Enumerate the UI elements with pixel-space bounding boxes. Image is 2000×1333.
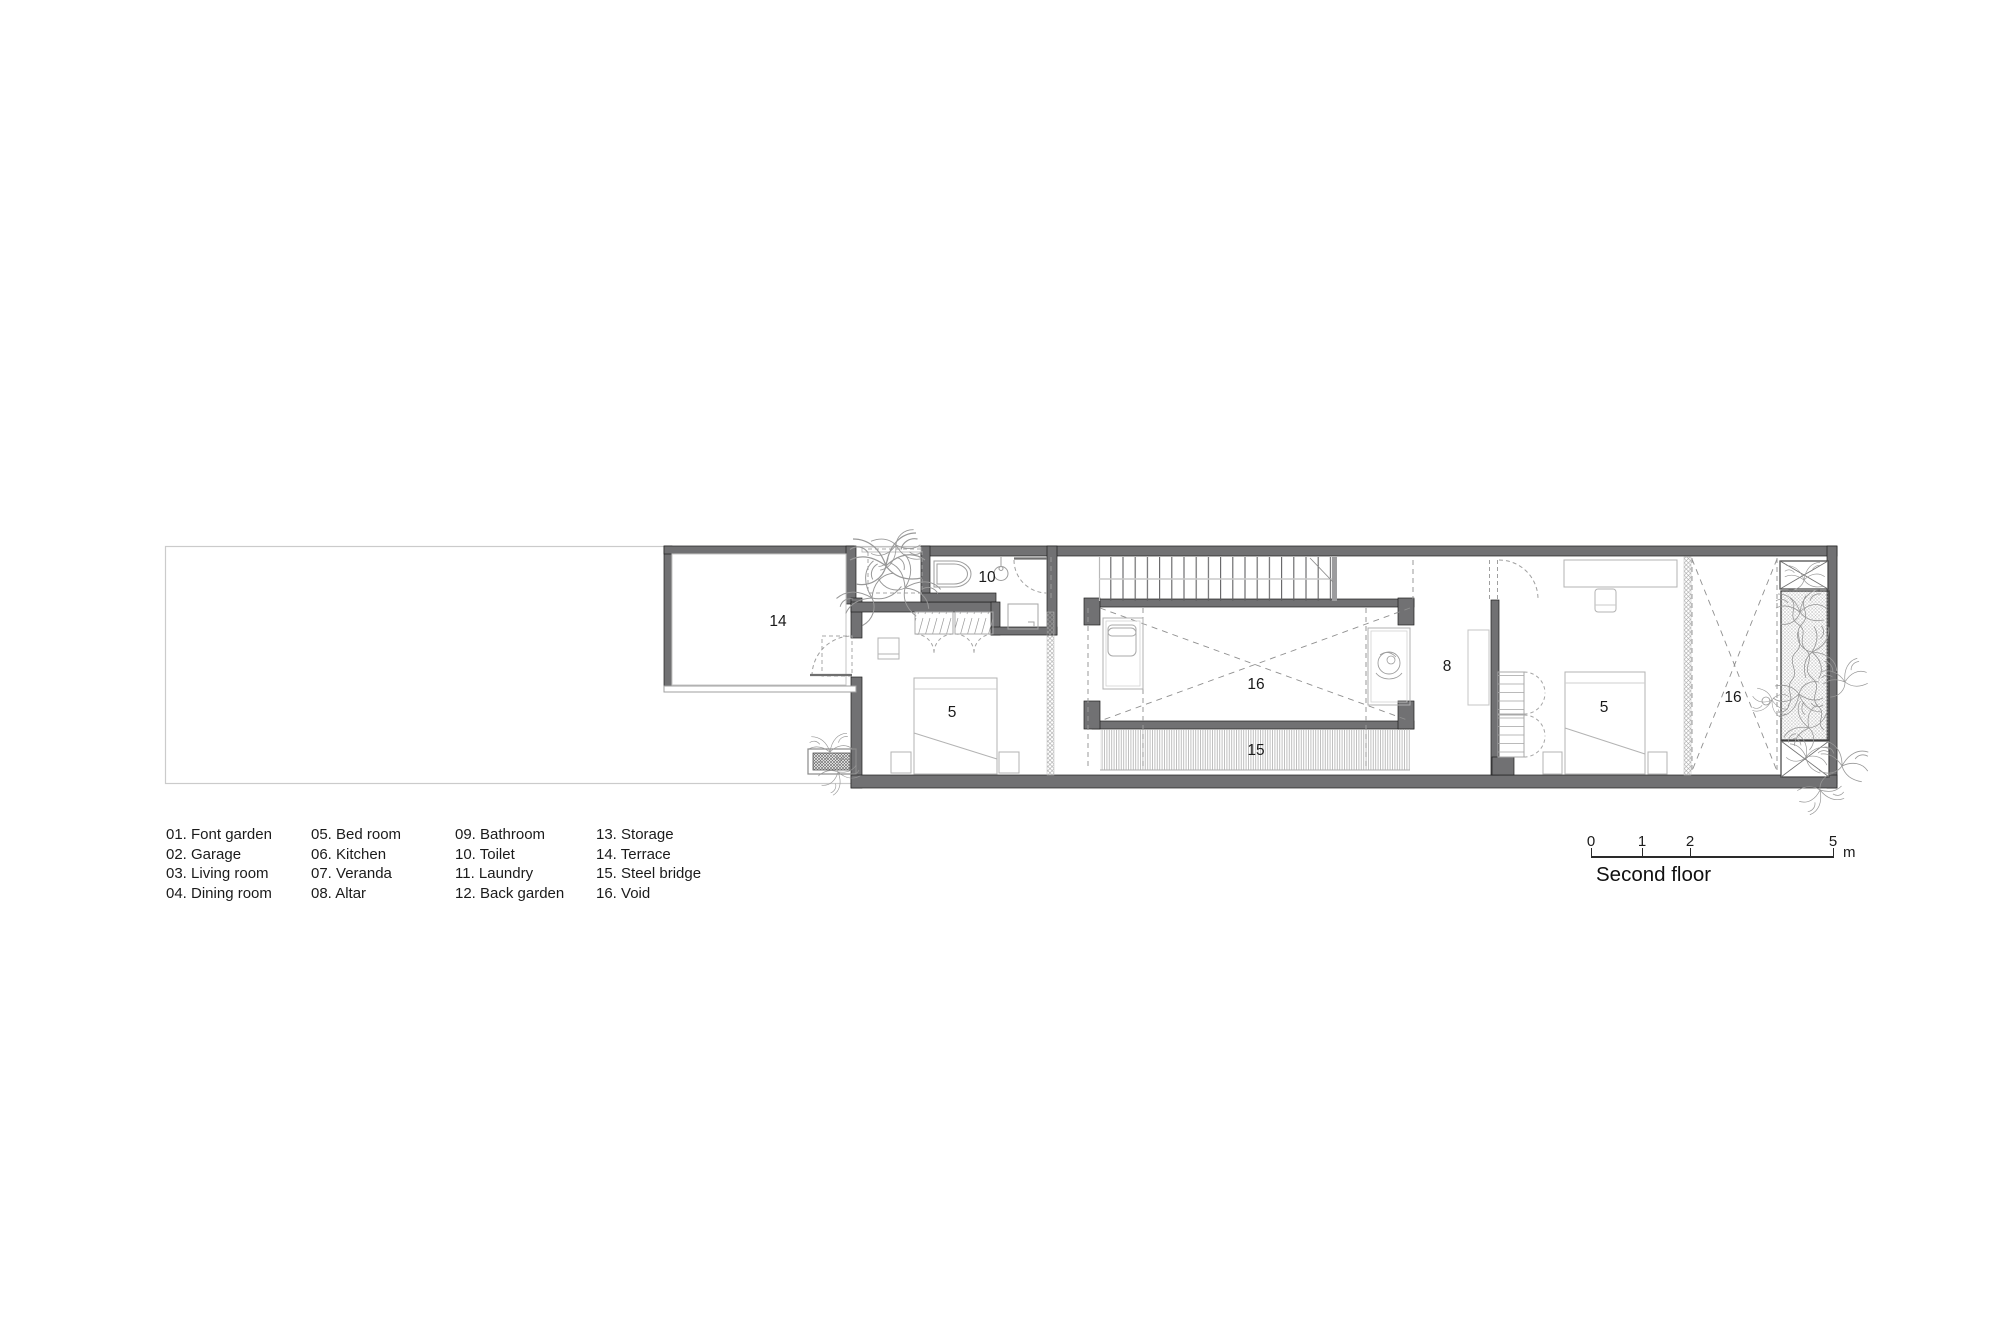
void-pier-tr	[1398, 598, 1414, 625]
toilet-wall-bottom	[921, 593, 996, 602]
room-label-toilet: 10	[978, 569, 996, 586]
plant-sprig-terrace	[831, 556, 907, 629]
altar-console	[1468, 630, 1489, 705]
bathtub-inner	[937, 564, 967, 584]
railing-strip-left	[1047, 612, 1054, 775]
bedroom-left	[878, 612, 1019, 774]
wardrobe-left-panel-2	[955, 612, 993, 634]
sink-tap	[999, 567, 1003, 571]
legend-item: 02. Garage	[166, 845, 311, 865]
nightstand-right-1	[1543, 752, 1562, 774]
legend-item: 16. Void	[596, 884, 756, 904]
side-table	[878, 638, 899, 659]
wardrobe-right-shelf-1	[1498, 672, 1524, 714]
room-label-bedroom-right: 5	[1600, 699, 1609, 716]
bedroom-left-wall-top	[851, 602, 996, 612]
railing-strip-right	[1684, 557, 1691, 775]
scale-bar-line	[1591, 856, 1834, 858]
legend: 01. Font garden 02. Garage 03. Living ro…	[166, 825, 756, 903]
nightstand-left-1	[891, 752, 911, 773]
office-chair-hub	[1387, 656, 1395, 664]
legend-column-2: 05. Bed room 06. Kitchen 07. Veranda 08.…	[311, 825, 455, 903]
void-right-x	[1692, 559, 1777, 771]
legend-column-4: 13. Storage 14. Terrace 15. Steel bridge…	[596, 825, 756, 903]
legend-item: 13. Storage	[596, 825, 756, 845]
floor-plan-page: 14 10 5 16 15 8 5 16 01. Font garden 02.…	[0, 0, 2000, 1333]
legend-item: 08. Altar	[311, 884, 455, 904]
room-label-terrace: 14	[769, 613, 787, 630]
desk-right	[1368, 628, 1410, 705]
room-label-altar: 8	[1443, 658, 1452, 675]
room-label-void-left: 16	[1247, 676, 1264, 693]
bathtub-icon	[934, 561, 971, 587]
legend-item: 09. Bathroom	[455, 825, 596, 845]
legend-item: 06. Kitchen	[311, 845, 455, 865]
terrace-wall-top	[664, 546, 854, 554]
room-label-void-right: 16	[1724, 689, 1741, 706]
chair-bedroom-right	[1595, 589, 1616, 612]
scale-bar: 0 1 2 5 m	[1585, 833, 1875, 863]
floor-plan-drawing: 14 10 5 16 15 8 5 16	[0, 0, 2000, 1333]
toilet-door-swing-arc	[1014, 560, 1047, 593]
bedroom-right	[1498, 560, 1677, 774]
legend-item: 10. Toilet	[455, 845, 596, 865]
balcony-planter-soil	[813, 753, 850, 770]
wardrobe-left-bifold-arcs	[915, 634, 993, 653]
washbasin-detail	[1028, 622, 1034, 627]
desk-bedroom-right	[1564, 560, 1677, 587]
scale-unit-label: m	[1843, 844, 1856, 861]
void-left-x	[1100, 608, 1410, 721]
void-pier-tl	[1084, 598, 1100, 625]
wardrobe-right-shelf-2	[1498, 715, 1524, 757]
terrace-door-leaf-dashed	[822, 636, 852, 676]
nightstand-right-2	[1648, 752, 1667, 774]
legend-column-3: 09. Bathroom 10. Toilet 11. Laundry 12. …	[455, 825, 596, 903]
green-wall	[1773, 561, 1837, 777]
desk-right-inner	[1371, 631, 1407, 702]
floor-title: Second floor	[1596, 863, 1711, 887]
void-pier-bl	[1084, 701, 1100, 729]
legend-item: 12. Back garden	[455, 884, 596, 904]
legend-item: 14. Terrace	[596, 845, 756, 865]
armchair-icon	[1108, 628, 1136, 656]
wall-pier-bedroom-right	[1492, 757, 1514, 775]
main-wall-top	[921, 546, 1837, 556]
sink-icon	[994, 567, 1008, 581]
legend-item: 15. Steel bridge	[596, 864, 756, 884]
terrace-inner-line	[672, 554, 846, 685]
nightstand-left-2	[999, 752, 1019, 773]
legend-item: 11. Laundry	[455, 864, 596, 884]
wardrobe-right-bifold-arcs	[1524, 672, 1545, 757]
room-label-bedroom-left: 5	[948, 704, 957, 721]
legend-item: 05. Bed room	[311, 825, 455, 845]
bedroom-right-door-swing-arc	[1499, 560, 1538, 599]
terrace	[664, 547, 921, 692]
terrace-wall-right	[846, 546, 856, 604]
bed-right	[1565, 672, 1645, 774]
bed-left	[914, 678, 997, 774]
terrace-wall-left	[664, 546, 672, 692]
wardrobe-left-panel-1	[915, 612, 953, 634]
staircase	[1099, 557, 1337, 601]
legend-column-1: 01. Font garden 02. Garage 03. Living ro…	[166, 825, 311, 903]
legend-item: 03. Living room	[166, 864, 311, 884]
terrace-parapet	[664, 686, 856, 692]
legend-item: 07. Veranda	[311, 864, 455, 884]
legend-item: 04. Dining room	[166, 884, 311, 904]
legend-item: 01. Font garden	[166, 825, 311, 845]
room-label-steel-bridge: 15	[1247, 742, 1264, 759]
main-wall-bottom	[851, 775, 1837, 788]
armchair-back	[1108, 625, 1136, 636]
stair-right-edge	[1332, 557, 1337, 601]
